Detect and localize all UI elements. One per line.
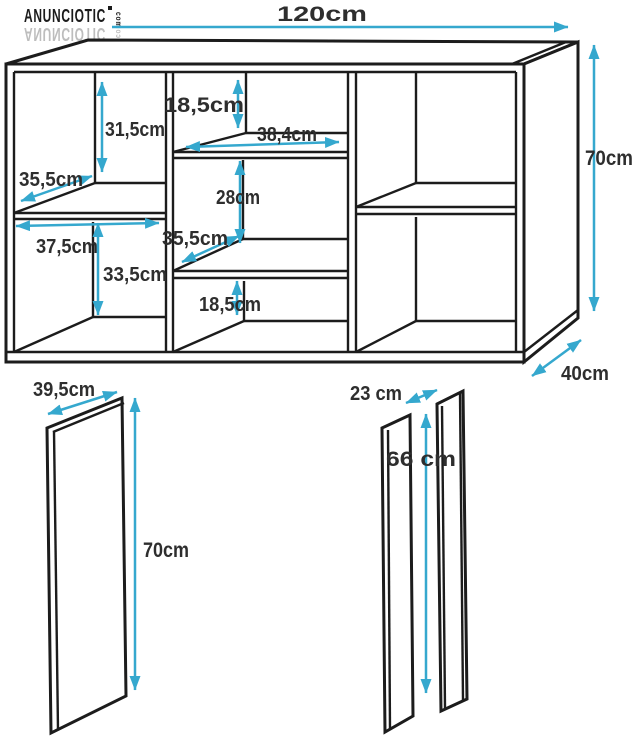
dim-label-divider-panel-width: 23 cm (350, 383, 402, 405)
dim-label-left-bottom-cell-width: 37,5cm (36, 236, 98, 258)
dim-label-middle-cell-width: 38,4cm (257, 124, 317, 146)
divider-panels-drawing (382, 391, 467, 732)
dimension-left-bottom-cell-width: 37,5cm (16, 223, 159, 258)
dim-label-cabinet-depth: 40cm (561, 363, 609, 385)
dim-label-cabinet-width: 120cm (277, 3, 367, 26)
dimension-side-panel-height: 70cm (135, 398, 189, 690)
dimension-left-bottom-cell-height: 33,5cm (98, 223, 167, 315)
middle-floor-depth-edge (173, 321, 244, 352)
dimension-cabinet-height: 70cm (585, 45, 633, 311)
side-panel-outline (47, 398, 126, 733)
dim-label-middle-bottom-cell-height: 18,5cm (199, 294, 261, 316)
dim-label-cabinet-height: 70cm (585, 147, 633, 170)
dimension-left-shelf-depth: 35,5cm (19, 169, 92, 201)
dim-label-divider-panel-height: 66 cm (386, 448, 456, 471)
dim-label-left-top-cell-height: 31,5cm (105, 119, 165, 141)
dimension-left-top-cell-height: 31,5cm (102, 82, 165, 172)
cabinet-top-face (6, 40, 578, 64)
dim-label-middle-top-cell-height: 18,5cm (164, 94, 244, 117)
middle-shelf1-depth-edge (173, 133, 246, 152)
dimension-cabinet-width: 120cm (112, 3, 568, 27)
right-shelf-depth-edge (356, 183, 416, 207)
dimension-divider-panel-width: 23 cm (350, 383, 437, 405)
cabinet-side-face (524, 42, 578, 362)
left-floor-depth-edge (14, 317, 93, 352)
furniture-dimension-diagram: ANUNCIOTIC com ANUNCIOTIC com (0, 0, 640, 741)
right-floor-depth-edge (356, 321, 416, 352)
logo: ANUNCIOTIC com ANUNCIOTIC com (24, 6, 123, 44)
dimension-middle-bottom-cell-height: 18,5cm (199, 281, 261, 316)
logo-tld-reflection-text: com (114, 22, 123, 38)
dim-label-side-panel-width: 39,5cm (33, 379, 95, 401)
cabinet-left-column (14, 73, 166, 352)
cabinet-right-column (356, 73, 516, 352)
dim-label-side-panel-height: 70cm (143, 539, 189, 562)
dim-label-left-bottom-cell-height: 33,5cm (103, 264, 167, 286)
dim-label-middle-cell-height: 28cm (216, 187, 260, 209)
side-panel-drawing (47, 398, 126, 733)
logo-brand-text: ANUNCIOTIC (24, 6, 106, 26)
logo-dot (108, 6, 112, 10)
dim-label-left-shelf-depth: 35,5cm (19, 169, 83, 191)
dimension-middle-top-cell-height: 18,5cm (164, 80, 244, 128)
cabinet-overview-drawing (6, 40, 578, 362)
dim-label-middle-shelf-depth: 35,5cm (162, 228, 228, 250)
